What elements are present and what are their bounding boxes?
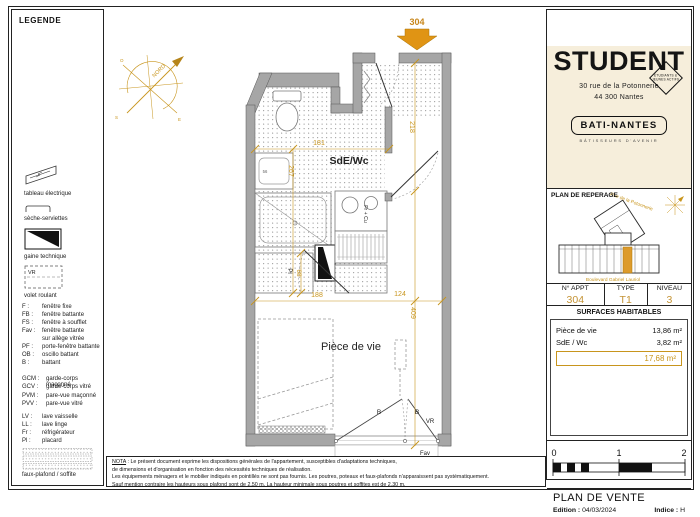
legend-label-gaine: gaine technique (24, 254, 66, 260)
location-map-section: PLAN DE REPERAGE Rue de la Potonnerie (547, 188, 691, 283)
apartment-table-header: N° APPT TYPE NIVEAU (547, 284, 691, 293)
site-map-bar (559, 245, 659, 273)
header-apt-number: N° APPT (547, 284, 605, 293)
room-label-living: Pièce de vie (321, 341, 381, 353)
surfaces-section: SURFACES HABITABLES Pièce de vie 13,86 m… (547, 305, 691, 440)
room-label-bathroom: SdE/Wc (329, 155, 368, 167)
legend-abbr-row: FS :fenêtre à soufflet (22, 320, 102, 328)
abbr-value: fenêtre à soufflet (42, 320, 102, 328)
abbr-value: fenêtre battante (42, 328, 102, 336)
indice-label: Indice : (654, 507, 678, 514)
title-block-panel: ÉTUDIANTS & JEUNES ACTIFS STUDENT 30 rue… (546, 9, 692, 480)
svg-text:E: E (178, 117, 181, 122)
edition-label: Edition : (553, 507, 580, 514)
nota-box: NOTA : Le présent document exprime les d… (106, 456, 546, 487)
mini-compass-icon (665, 195, 685, 215)
svg-text:O: O (120, 58, 124, 63)
surface-value: 13,86 m² (652, 326, 682, 335)
legend-label-faux-plafond: faux-plafond / soffite (22, 472, 76, 478)
surface-row: Pièce de vie 13,86 m² (556, 326, 682, 335)
desk-outline (395, 340, 406, 369)
closet (255, 253, 313, 293)
builder-logo: BATI-NANTES (571, 116, 668, 135)
legend-abbr-row: OB :oscillo battant (22, 352, 102, 360)
abbr-key: F : (22, 304, 42, 312)
nota-line-4: Sauf mention contraire les hauteurs sous… (112, 482, 540, 490)
legend-abbr-row: PF :porte-fenêtre battante (22, 344, 102, 352)
scale-bar-section: 0 1 2 (547, 440, 691, 488)
abbr-key: LV : (22, 414, 42, 422)
roller-shutter-tag: VR (28, 270, 36, 276)
legend-panel: LEGENDE tableau électrique sèche-serviet… (11, 9, 104, 486)
surfaces-title: SURFACES HABITABLES (547, 306, 691, 319)
edition-value: 04/03/2024 (582, 507, 616, 514)
svg-text:S: S (115, 115, 118, 120)
dim-bath-height: 267 (287, 165, 294, 177)
legend-abbr-row: LV :lave vaisselle (22, 414, 102, 422)
nota-text-1: : Le présent document exprime les dispos… (126, 459, 397, 465)
dim-living-height: 409 (409, 307, 416, 319)
dim-sink: 56 (263, 169, 268, 174)
apartment-table: N° APPT TYPE NIVEAU 304 T1 3 (547, 283, 691, 305)
false-ceiling-icon (22, 448, 94, 470)
surface-value: 3,82 m² (657, 338, 682, 347)
abbr-value: pare-vue maçonné (46, 393, 102, 401)
scale-bar: 0 1 2 (549, 447, 689, 483)
floor-plan: 181 267 218 409 188 124 68 56 SdE/Wc Piè… (106, 7, 546, 456)
header-level: NIVEAU (648, 284, 691, 293)
legend-abbreviations-guards: GCM :garde-corps maçonné GCV :garde-corp… (22, 376, 102, 409)
brand-block: ÉTUDIANTS & JEUNES ACTIFS STUDENT 30 rue… (547, 46, 691, 188)
kitchen-fixtures (335, 191, 387, 293)
legend-abbr-row: Pl :placard (22, 438, 102, 446)
window-leaf-label-right: B (415, 409, 419, 416)
drawing-title: PLAN DE VENTE (553, 492, 685, 504)
surfaces-table: Pièce de vie 13,86 m² SdE / Wc 3,82 m² 1… (550, 319, 688, 436)
abbr-key: Fav : (22, 328, 42, 336)
scale-tick-0: 0 (551, 448, 556, 458)
surface-label: Pièce de vie (556, 326, 597, 335)
abbr-key: LL : (22, 422, 42, 430)
scale-tick-1: 1 (616, 448, 621, 458)
abbr-value: sur allège vitrée (42, 336, 102, 344)
dim-living-width: 188 (311, 292, 323, 299)
legend-abbr-row: Fav :fenêtre battante (22, 328, 102, 336)
closet-label: Pl (286, 268, 292, 273)
abbr-value: fenêtre fixe (42, 304, 102, 312)
abbr-key: GCV : (22, 384, 46, 392)
nota-line-1: NOTA : Le présent document exprime les d… (112, 459, 540, 467)
legend-abbreviations-windows: F :fenêtre fixe FB :fenêtre battante FS … (22, 304, 102, 368)
radiator (259, 426, 325, 433)
plan-sheet: LEGENDE tableau électrique sèche-serviet… (8, 6, 694, 490)
compass-icon: NORD O S E (115, 55, 184, 122)
towel-dryer-icon (24, 204, 52, 213)
dim-bath-width: 181 (313, 140, 325, 147)
badge-line-2: JEUNES ACTIFS (652, 78, 679, 82)
edition-pair: Edition : 04/03/2024 (553, 507, 616, 514)
bed-outline (258, 319, 333, 429)
unit-arrow-icon (397, 29, 437, 50)
dim-living-right: 124 (394, 291, 406, 298)
kitchen-hob (335, 191, 387, 231)
unit-marker: 304 (397, 17, 437, 50)
roller-shutter-label: VR (426, 419, 435, 425)
abbr-key: FB : (22, 312, 42, 320)
unit-number: 304 (409, 17, 424, 27)
legend-abbr-row: F :fenêtre fixe (22, 304, 102, 312)
abbr-value: battant (42, 360, 102, 368)
abbr-value: lave linge (42, 422, 102, 430)
fridge-cooker-label: Fr + Cu (362, 205, 368, 223)
drawing-footer: PLAN DE VENTE Edition : 04/03/2024 Indic… (547, 488, 691, 517)
location-map-title: PLAN DE REPERAGE (551, 192, 618, 199)
window-leaf-label-left: B (377, 409, 381, 416)
abbr-key: Fr : (22, 430, 42, 438)
legend-abbr-row: Fr :réfrigérateur (22, 430, 102, 438)
legend-label-tableau: tableau électrique (24, 191, 71, 197)
legend-label-volet: volet roulant (24, 293, 57, 299)
abbr-key: OB : (22, 352, 42, 360)
header-type: TYPE (605, 284, 648, 293)
toilet-tank (273, 91, 301, 101)
abbr-value: lave vaisselle (42, 414, 102, 422)
legend-abbr-row: GCM :garde-corps maçonné (22, 376, 102, 384)
nota-line-3: Les équipements ménagers et le mobilier … (112, 474, 540, 482)
legend-abbr-row: sur allège vitrée (22, 336, 102, 344)
legend-label-seche: sèche-serviettes (24, 216, 68, 222)
abbr-value: réfrigérateur (42, 430, 102, 438)
legend-abbr-row: PVV :pare-vue vitré (22, 401, 102, 409)
nota-line-2: de dimensions et d'organisation en fonct… (112, 467, 540, 475)
legend-abbr-row: LL :lave linge (22, 422, 102, 430)
highlighted-unit (623, 247, 632, 273)
surface-label: SdE / Wc (556, 338, 587, 347)
abbr-key: B : (22, 360, 42, 368)
toilet-bowl (276, 103, 298, 131)
dim-hall-height: 218 (408, 121, 415, 133)
roller-shutter-icon: VR (24, 264, 64, 290)
drawing-meta: Edition : 04/03/2024 Indice : H (553, 507, 685, 514)
kitchen-cabinet (335, 265, 387, 293)
builder-tagline: BÂTISSEURS D'AVENIR (547, 138, 691, 143)
site-map: Rue de la Potonnerie Boulevard Gabriel L… (547, 191, 692, 284)
surface-total: 17,68 m² (556, 351, 682, 366)
surface-row: SdE / Wc 3,82 m² (556, 338, 682, 347)
legend-title: LEGENDE (19, 16, 61, 25)
abbr-key: PVM : (22, 393, 46, 401)
abbr-key: FS : (22, 320, 42, 328)
abbr-key: PF : (22, 344, 42, 352)
abbr-value: oscillo battant (42, 352, 102, 360)
window-fav (334, 399, 439, 456)
address-line-2: 44 300 Nantes (547, 93, 691, 104)
abbr-key (22, 336, 42, 344)
legend-abbreviations-appliances: LV :lave vaisselle LL :lave linge Fr :ré… (22, 414, 102, 446)
abbr-key: PVV : (22, 401, 46, 409)
brand-badge-text: ÉTUDIANTS & JEUNES ACTIFS (652, 74, 679, 82)
bathroom-door-leaf (391, 151, 438, 197)
north-label: NORD (151, 63, 167, 79)
abbr-value: fenêtre battante (42, 312, 102, 320)
legend-abbr-row: FB :fenêtre battante (22, 312, 102, 320)
technical-duct-icon (24, 227, 62, 251)
legend-abbr-row: PVM :pare-vue maçonné (22, 393, 102, 401)
nota-label: NOTA (112, 459, 126, 465)
abbr-value: porte-fenêtre battante (42, 344, 102, 352)
abbr-value: pare-vue vitré (46, 401, 102, 409)
legend-abbr-row: GCV :garde-corps vitré (22, 384, 102, 392)
legend-abbr-row: B :battant (22, 360, 102, 368)
abbr-value: placard (42, 438, 102, 446)
indice-pair: Indice : H (654, 507, 685, 514)
scale-tick-2: 2 (681, 448, 686, 458)
abbr-value: garde-corps maçonné (46, 376, 102, 384)
furniture-dashed (258, 319, 406, 429)
abbr-key: Pl : (22, 438, 42, 446)
dim-closet: 68 (295, 269, 302, 277)
electrical-panel-icon (24, 158, 58, 188)
abbr-value: garde-corps vitré (46, 384, 102, 392)
indice-value: H (680, 507, 685, 514)
abbr-key: GCM : (22, 376, 46, 384)
